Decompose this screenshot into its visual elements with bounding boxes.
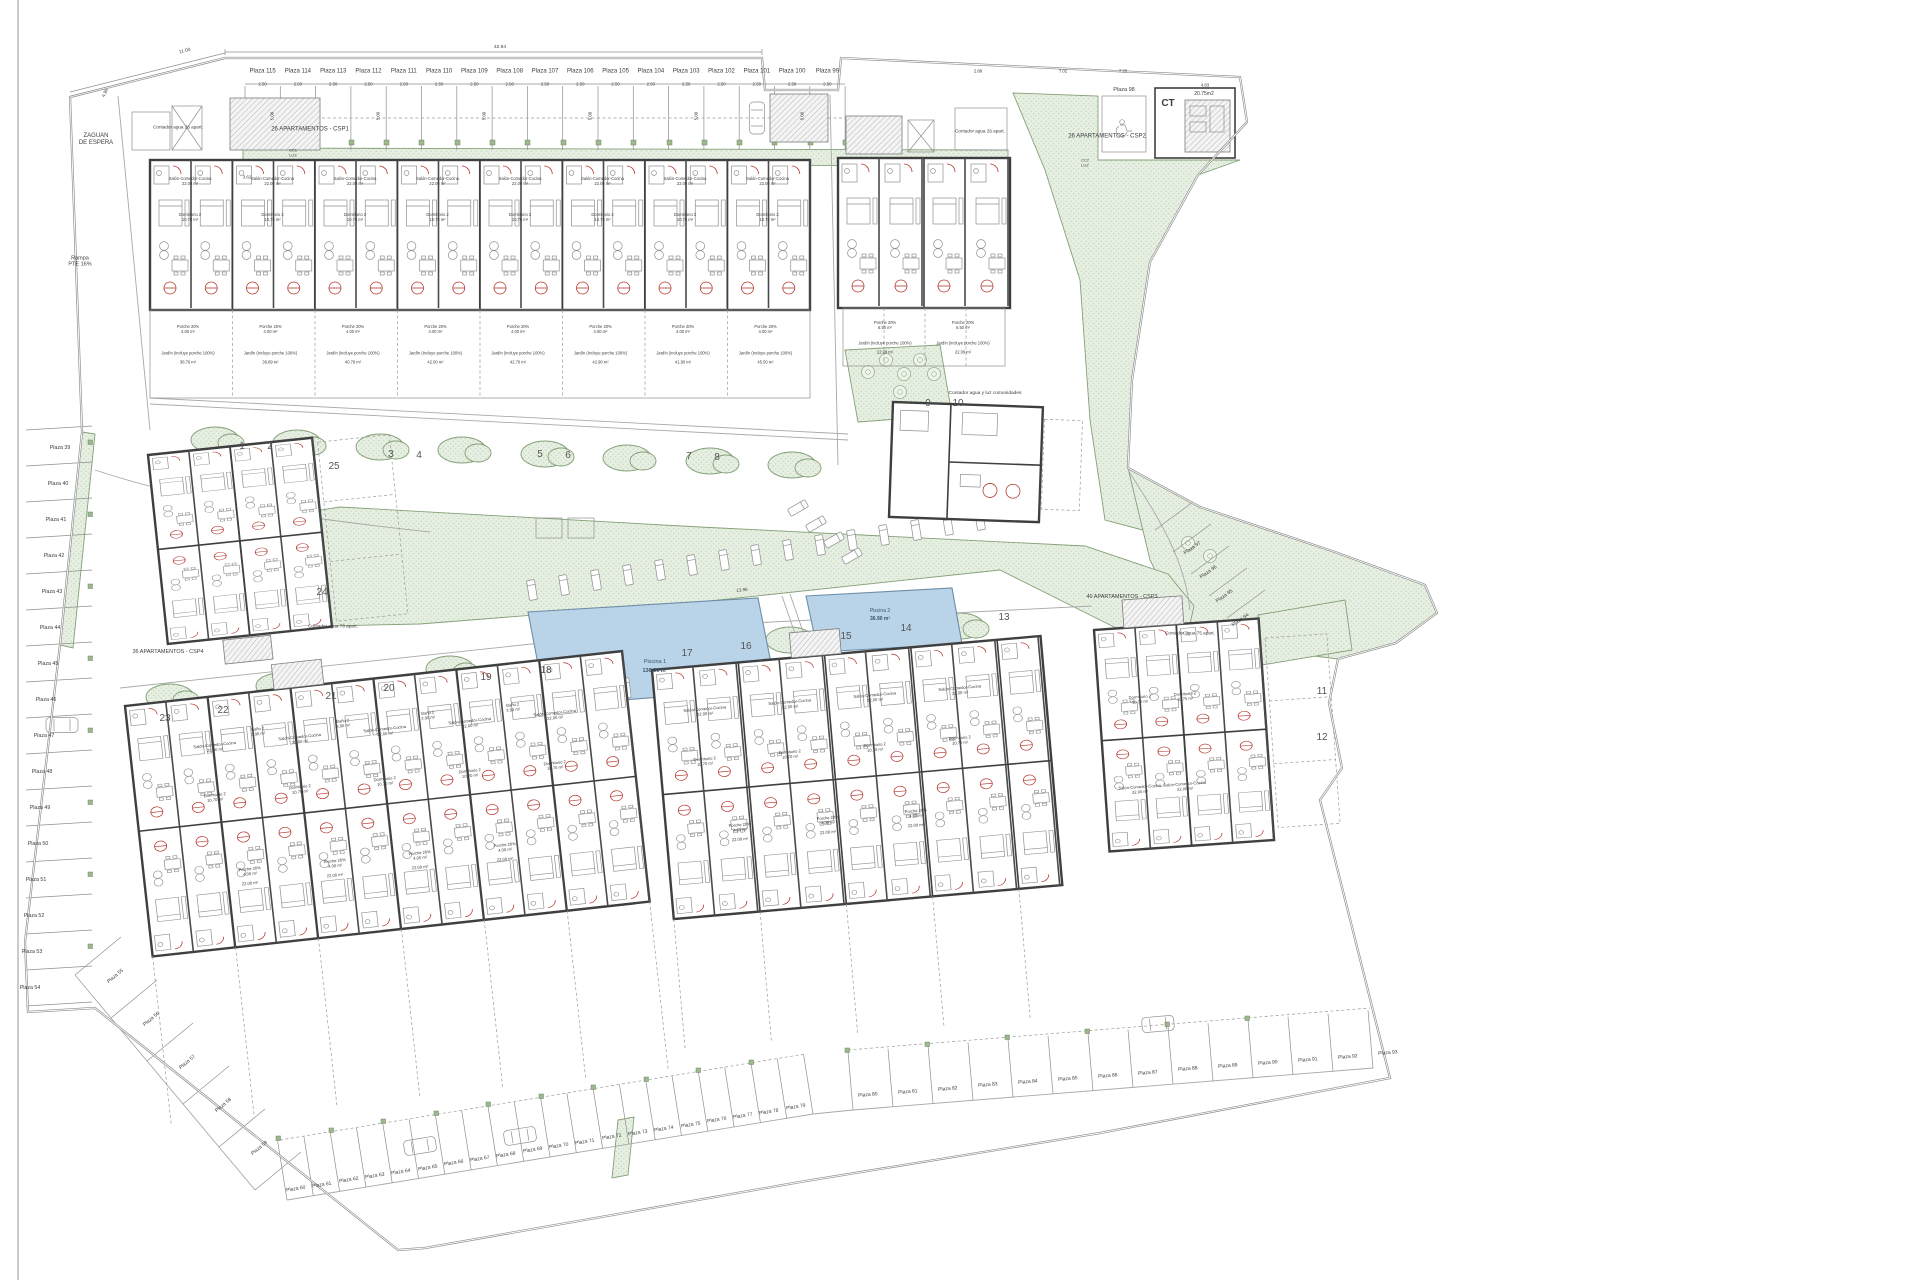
communal-building <box>889 402 1083 524</box>
building-csp1 <box>132 98 810 398</box>
site-plan-drawing <box>0 0 1920 1280</box>
stair-core <box>846 108 1007 154</box>
parking-markers-left <box>88 440 93 949</box>
building-csp4-south <box>122 626 668 1123</box>
accessible-parking-slot <box>1102 96 1146 152</box>
parking-markers <box>243 140 848 145</box>
dimension-lines <box>70 49 845 92</box>
site-plan-page: ZAGUAN DE ESPERA Rampa PTE 16% 26 APARTA… <box>0 0 1920 1280</box>
entry-stair <box>770 94 828 142</box>
building-csp2 <box>838 108 1010 366</box>
accessible-parking-icon <box>1116 120 1132 137</box>
building-csp4-csp3-mid <box>650 611 1074 1048</box>
stair-core <box>132 98 320 150</box>
